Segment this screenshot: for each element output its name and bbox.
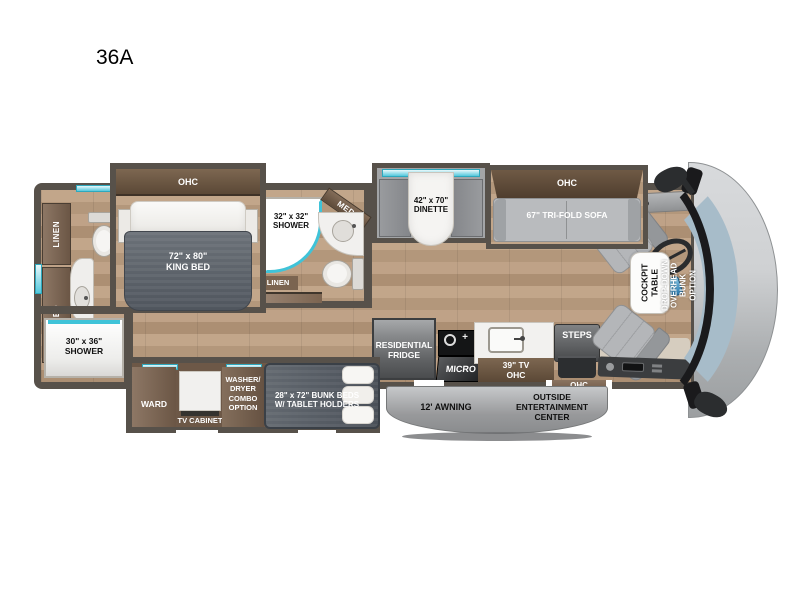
mid-bath-wall-right: [364, 190, 372, 308]
bedroom-slideout: OHC 72" x 80" KING BED: [110, 163, 266, 313]
rear-shower-label: 30" x 36" SHOWER: [46, 336, 122, 356]
rear-shower-glass-icon: [48, 320, 120, 324]
sofa-ohc-cabinet: OHC: [491, 170, 643, 198]
awning-label: 12' AWNING: [394, 402, 498, 413]
micro-label: MICRO: [445, 364, 476, 375]
mid-bath-lower-cabinet: [258, 292, 322, 303]
fridge-label: RESIDENTIAL FRIDGE: [374, 340, 434, 360]
bunk-beds-label: 28" x 72" BUNK BEDS W/ TABLET HOLDERS: [262, 391, 372, 410]
sofa-slideout: OHC 67" TRI-FOLD SOFA: [486, 165, 648, 249]
washer-dryer-label: WASHER/ DRYER COMBO OPTION: [220, 375, 266, 413]
mid-sink-icon: [332, 220, 354, 242]
bed-ohc-cabinet: OHC: [116, 169, 260, 196]
mid-toilet-tank-icon: [352, 258, 364, 290]
mid-linen-label: LINEN: [267, 279, 290, 288]
mid-sink-faucet-icon: [352, 224, 356, 228]
king-bed-label: 72" x 80" KING BED: [130, 251, 246, 272]
cooktop-plus-icon: +: [458, 332, 472, 344]
dinette-label: 42" x 70" DINETTE: [400, 196, 462, 215]
compartment-door: [176, 430, 218, 438]
floorplan-page: 36A LINEN MED 30" x 36" SHOWER 32" x 32"…: [0, 0, 800, 600]
plan-title: 36A: [96, 46, 186, 71]
tv-cabinet-label: TV CABINET: [172, 417, 228, 426]
wardrobe: [132, 367, 176, 427]
sofa-label: 67" TRI-FOLD SOFA: [501, 210, 633, 220]
tv-cabinet-top: [179, 371, 221, 411]
rear-linen-label: LINEN: [52, 221, 61, 248]
ward-label: WARD: [132, 399, 176, 409]
bottom-slideout: WARD TV CABINET WASHER/ DRYER COMBO OPTI…: [126, 357, 380, 433]
compartment-door: [298, 430, 336, 438]
tv-ohc-bar: 39" TV OHC: [478, 358, 554, 382]
kitchen-sink-icon: [488, 327, 524, 353]
rear-sink-faucet-icon: [84, 296, 88, 300]
outside-entertainment-label: OUTSIDE ENTERTAINMENT CENTER: [498, 392, 606, 422]
kitchen-faucet-stem-icon: [514, 338, 522, 340]
mid-toilet-bowl-icon: [327, 264, 347, 283]
rear-wall-window-icon: [35, 264, 42, 294]
rear-linen-cabinet: LINEN: [42, 203, 71, 265]
cooktop-burner-icon: [444, 334, 456, 346]
mid-shower-label: 32" x 32" SHOWER: [262, 212, 320, 231]
pillow-icon: [342, 366, 374, 384]
awning-shadow: [402, 432, 592, 441]
